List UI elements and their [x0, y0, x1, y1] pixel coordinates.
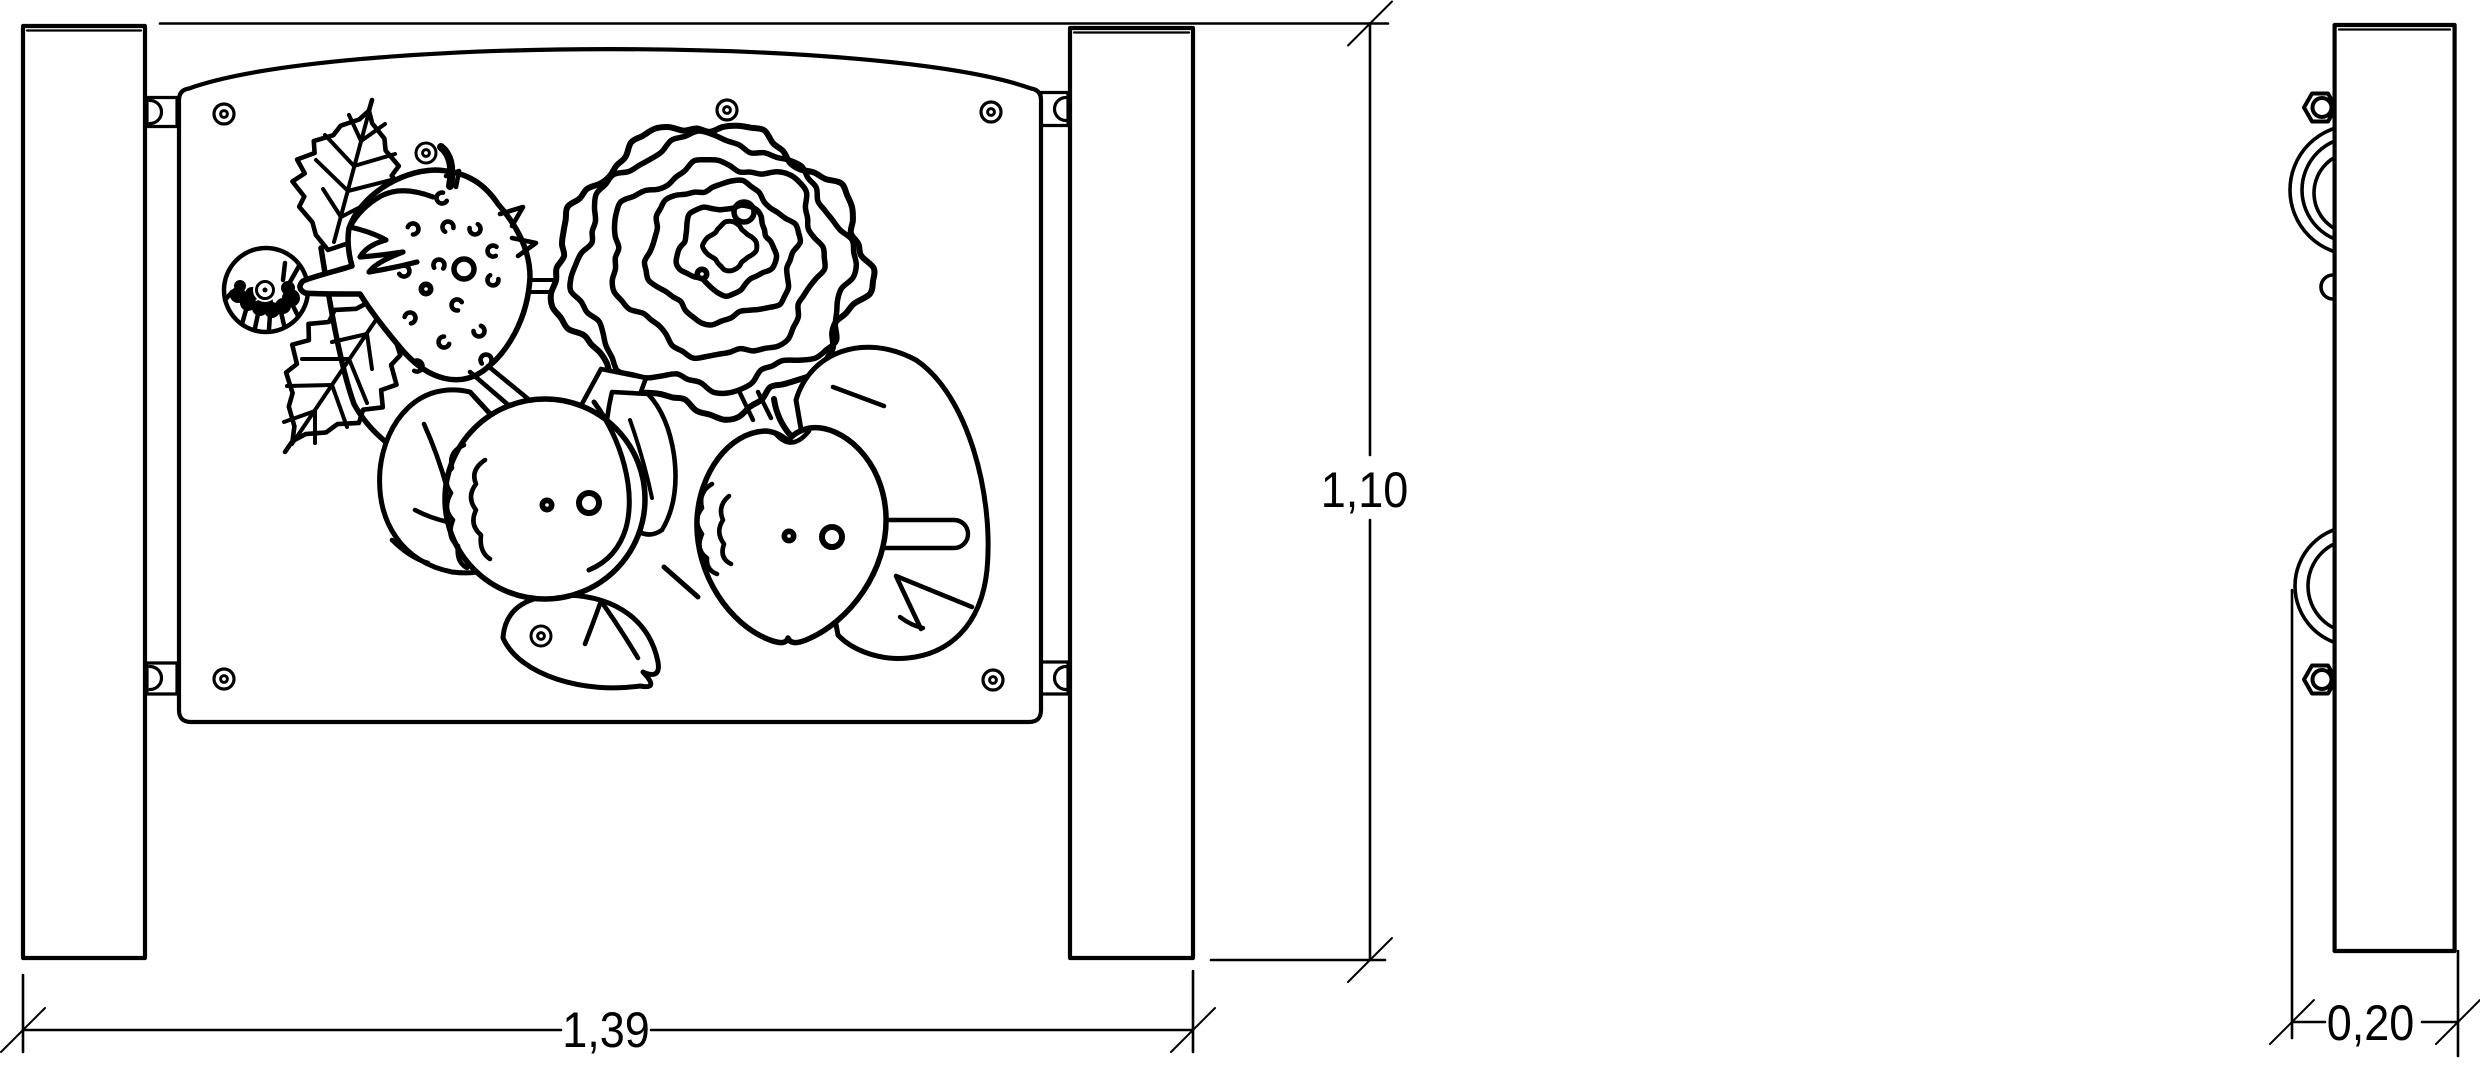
svg-text:1,39: 1,39: [562, 1003, 650, 1059]
svg-text:1,10: 1,10: [1321, 463, 1409, 519]
svg-text:0,20: 0,20: [2327, 996, 2415, 1052]
